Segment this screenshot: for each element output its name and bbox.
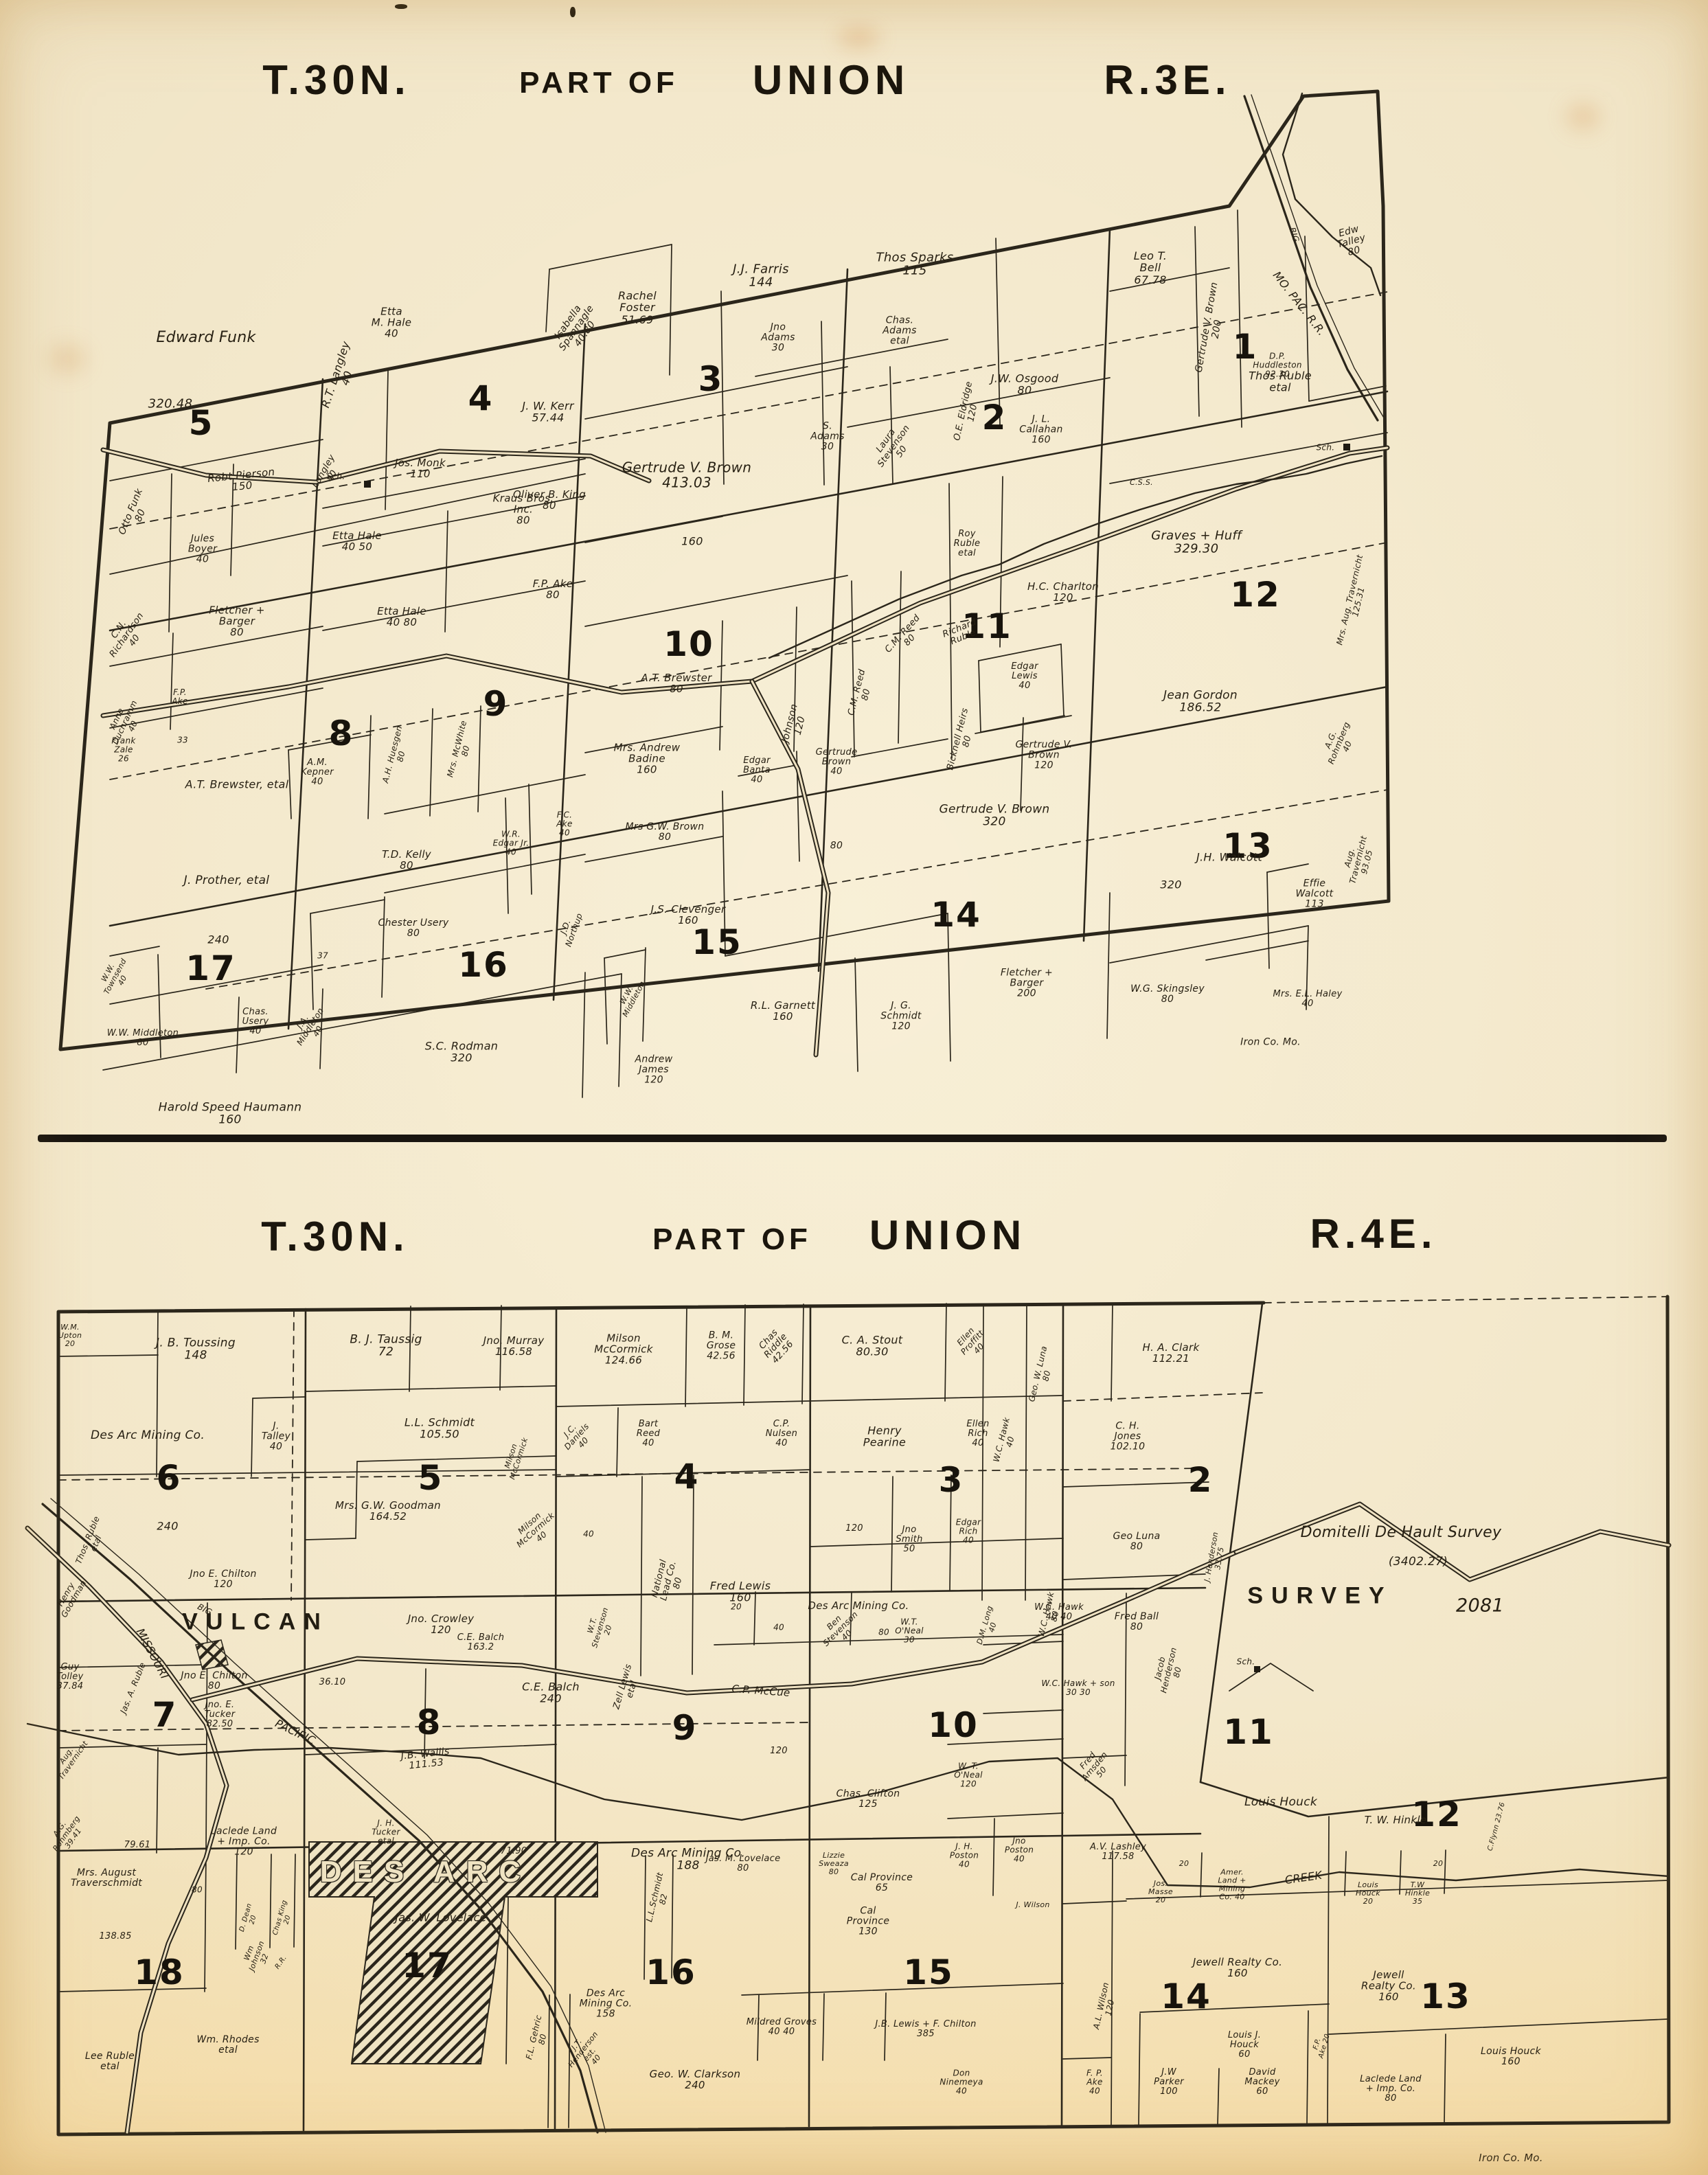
parcel-label: Jno. Murray 116.58 (483, 1335, 545, 1357)
parcel-label: J.B. Wallis 111.53 (400, 1746, 451, 1772)
section-number: 5 (418, 1458, 444, 1498)
parcel-label: J. H. Poston 40 (950, 1843, 979, 1869)
section-number: 6 (157, 1458, 182, 1498)
section-number: 2 (1188, 1460, 1214, 1500)
parcel-label: 20 (731, 1603, 742, 1612)
parcel-label: Jos. Masse 20 (1148, 1880, 1173, 1904)
parcel-label: J. Talley 40 (262, 1421, 291, 1452)
parcel-label: PACIFIC (273, 1717, 317, 1746)
parcel-label: F.P. Ake 20 (1311, 2031, 1332, 2059)
town-label: SURVEY (1247, 1583, 1392, 1610)
parcel-label: 20 (1433, 1860, 1444, 1868)
parcel-label: W. T. O'Neal 120 (954, 1762, 983, 1789)
parcel-label: J.W Parker 100 (1154, 2068, 1184, 2097)
section-number: 11 (1223, 1712, 1274, 1752)
parcel-label: Domitelli De Hault Survey (1301, 1525, 1502, 1541)
parcel-label: J. H. Tucker etal (372, 1819, 400, 1846)
parcel-label: Fred Amsden 50 (1073, 1744, 1116, 1788)
parcel-label: W.C. Hawk + son 30 30 (1041, 1679, 1115, 1697)
parcel-label: Bart Reed 40 (637, 1420, 660, 1448)
section-number: 8 (417, 1703, 442, 1742)
parcel-label: Chas. Clifton 125 (836, 1789, 900, 1810)
section-number: 17 (402, 1946, 453, 1985)
parcel-label: B. M. Grose 42.56 (707, 1330, 736, 1361)
parcel-label: Geo. W. Clarkson 240 (650, 2069, 741, 2091)
parcel-label: 120 (770, 1746, 788, 1756)
section-number: 13 (1420, 1977, 1471, 2016)
parcel-label: Jas. M. Lovelace 80 (706, 1854, 781, 1874)
section-number: 4 (674, 1457, 700, 1496)
parcel-label: W.C. Hawk 40 40 (1034, 1603, 1084, 1622)
parcel-label: C.Flynn 23.76 (1487, 1801, 1507, 1852)
section-number: 3 (939, 1460, 964, 1500)
parcel-label: Jas. A. Ruble (119, 1661, 148, 1715)
parcel-label: Wm. Rhodes etal (196, 2035, 259, 2056)
parcel-label: J. Wilson (1016, 1901, 1049, 1909)
parcel-label: (3402.27) (1389, 1556, 1448, 1568)
parcel-label: Mrs. G.W. Goodman 164.52 (335, 1500, 441, 1522)
parcel-label: Cal Province 130 (847, 1906, 890, 1937)
parcel-label: CREEK (1284, 1869, 1323, 1887)
parcel-label: Mildred Groves 40 40 (747, 2018, 817, 2037)
parcel-label: J.C. Daniels 40 (556, 1416, 597, 1458)
parcel-label: C.E. Balch 163.2 (457, 1633, 505, 1652)
parcel-label: 80 (878, 1628, 889, 1637)
parcel-label: Henry Pearine (863, 1425, 906, 1449)
section-number: 10 (928, 1705, 979, 1745)
parcel-label: Des Arc Mining Co. 158 (580, 1988, 633, 2019)
parcel-label: 80 (192, 1886, 203, 1895)
parcel-label: C.P. McCue (731, 1683, 790, 1698)
parcel-label: 36.10 (319, 1678, 346, 1687)
parcel-label: F. P. Ake 40 (1086, 2069, 1103, 2096)
parcel-label: 240 (157, 1520, 178, 1531)
parcel-label: C.P. Nulsen 40 (766, 1420, 797, 1448)
parcel-label: Jno Smith 50 (896, 1525, 922, 1554)
parcel-label: A.L. Wilson 120 (1092, 1981, 1119, 2031)
parcel-label: F.L. Gehric 80 (525, 2014, 552, 2062)
parcel-label: H. A. Clark 112.21 (1143, 1342, 1200, 1364)
parcel-label: Lee Ruble etal (85, 2051, 135, 2072)
parcel-label: D. Dean 20 (239, 1903, 261, 1935)
parcel-label: Zell Lewis etal (612, 1663, 644, 1713)
parcel-label: Aug. Travernicht (50, 1735, 89, 1781)
map-r4e-labels: 65432789101118171615141312W.M. Upton 20J… (0, 0, 1708, 2175)
parcel-label: A.G. Rohmberg 39.41 (45, 1810, 88, 1857)
parcel-label: J. B. Toussing 148 (156, 1337, 236, 1363)
parcel-label: Jas. W. Lovelace (395, 1911, 486, 1923)
parcel-label: Des Arc Mining Co. (808, 1600, 909, 1611)
parcel-label: 40 (583, 1530, 594, 1539)
parcel-label: C. A. Stout 80.30 (842, 1334, 903, 1358)
section-number: 15 (903, 1952, 954, 1992)
parcel-label: J. Henderson 33.75 (1203, 1531, 1228, 1584)
parcel-label: Iron Co. Mo. (1479, 2152, 1543, 2163)
parcel-label: 2081 (1456, 1595, 1504, 1615)
parcel-label: Guy Tolley 37.84 (56, 1663, 83, 1692)
parcel-label: T. W. Hinkle (1365, 1814, 1427, 1825)
section-number: 18 (134, 1952, 185, 1992)
parcel-label: Louis Houck 20 (1356, 1881, 1380, 1906)
section-number: 16 (646, 1952, 696, 1992)
parcel-label: Jacob Henderson 80 (1150, 1645, 1187, 1696)
parcel-label: Edgar Rich 40 (956, 1518, 981, 1545)
parcel-label: Fred Lewis 160 (710, 1580, 771, 1604)
parcel-label: 40 (773, 1624, 784, 1632)
parcel-label: Ellen Proffitt 40 (953, 1323, 992, 1363)
parcel-label: Milson McCormick 124.66 (594, 1333, 652, 1367)
parcel-label: A.V. Lashley 117.58 (1090, 1843, 1146, 1862)
town-label: DES ARC (320, 1855, 532, 1889)
parcel-label: Milson McCormick (501, 1434, 530, 1481)
parcel-label: Ellen Rich 40 (966, 1420, 989, 1448)
section-number: 7 (152, 1695, 178, 1735)
parcel-label: C. H. Jones 102.10 (1111, 1421, 1146, 1452)
parcel-label: Mrs. August Traverschmidt (71, 1868, 142, 1889)
parcel-label: W.M. Upton 20 (58, 1323, 82, 1348)
parcel-label: Jno. E. Tucker 82.50 (205, 1700, 236, 1729)
parcel-label: Geo. W. Luna 80 (1027, 1345, 1058, 1405)
parcel-label: L.L.Schmidt 82 (645, 1871, 674, 1924)
parcel-label: T.W Hinkle 35 (1405, 1881, 1430, 1906)
parcel-label: Jno Poston 40 (1005, 1837, 1034, 1864)
parcel-label: Laclede Land + Imp. Co. 80 (1360, 2075, 1422, 2104)
parcel-label: Cal Province 65 (851, 1873, 913, 1893)
parcel-label: Laclede Land + Imp. Co. 120 (211, 1826, 277, 1857)
parcel-label: Geo Luna 80 (1113, 1531, 1160, 1552)
section-number: 14 (1161, 1977, 1211, 2016)
parcel-label: Des Arc Mining Co. (91, 1429, 205, 1442)
parcel-label: Louis Houck (1244, 1796, 1317, 1808)
parcel-label: J.T. Henderson est. 40 (560, 2025, 613, 2079)
plat-map-page: { "maps":[ { "id":"r3e", "title":{"towns… (0, 0, 1708, 2175)
parcel-label: Jno E. Chilton 80 (181, 1671, 247, 1692)
parcel-label: Louis J. Houck 60 (1228, 2031, 1261, 2060)
parcel-label: W.T. O'Neal 30 (895, 1618, 924, 1645)
parcel-label: Louis Houck 160 (1481, 2047, 1541, 2067)
parcel-label: David Mackey 60 (1244, 2068, 1279, 2097)
parcel-label: Chas Riddle 42.56 (755, 1325, 797, 1367)
parcel-label: 20 (1179, 1860, 1189, 1868)
parcel-label: Jno E. Chilton 120 (190, 1569, 256, 1590)
parcel-label: Jewell Realty Co. 160 (1361, 1970, 1416, 2003)
parcel-label: Sch. (1237, 1658, 1255, 1667)
section-number: 9 (672, 1708, 698, 1748)
parcel-label: Lizzie Sweaza 80 (819, 1852, 849, 1876)
parcel-label: W.T. Stevenson 20 (583, 1604, 618, 1651)
parcel-label: D.M. Long 40 (976, 1605, 1003, 1648)
parcel-label: J.B. Lewis + F. Chilton 385 (875, 2020, 976, 2039)
parcel-label: 120 (845, 1524, 863, 1534)
parcel-label: C.E. Balch 240 (522, 1681, 580, 1705)
parcel-label: 79.61 (124, 1841, 151, 1850)
parcel-label: Amer. Land + Mining Co. 40 (1218, 1868, 1246, 1901)
parcel-label: 138.85 (99, 1932, 131, 1941)
parcel-label: Thos. Ruble etal (74, 1515, 110, 1569)
parcel-label: L.L. Schmidt 105.50 (405, 1417, 475, 1441)
parcel-label: Wm Johnson 32 (240, 1937, 273, 1975)
parcel-label: W.C. Hawk 40 (992, 1417, 1020, 1466)
parcel-label: National Lead Co. 80 (650, 1558, 687, 1604)
parcel-label: Chas King 20 (272, 1900, 296, 1938)
parcel-label: Henry Goodman (52, 1574, 89, 1619)
parcel-label: Jewell Realty Co. 160 (1193, 1957, 1282, 1979)
parcel-label: R.R. (274, 1955, 288, 1971)
parcel-label: Milson McCormick 40 (509, 1505, 562, 1556)
parcel-label: Don Ninemeya 40 (940, 2069, 983, 2096)
parcel-label: B. J. Taussig 72 (350, 1334, 422, 1359)
parcel-label: Fred Ball 80 (1115, 1612, 1159, 1632)
